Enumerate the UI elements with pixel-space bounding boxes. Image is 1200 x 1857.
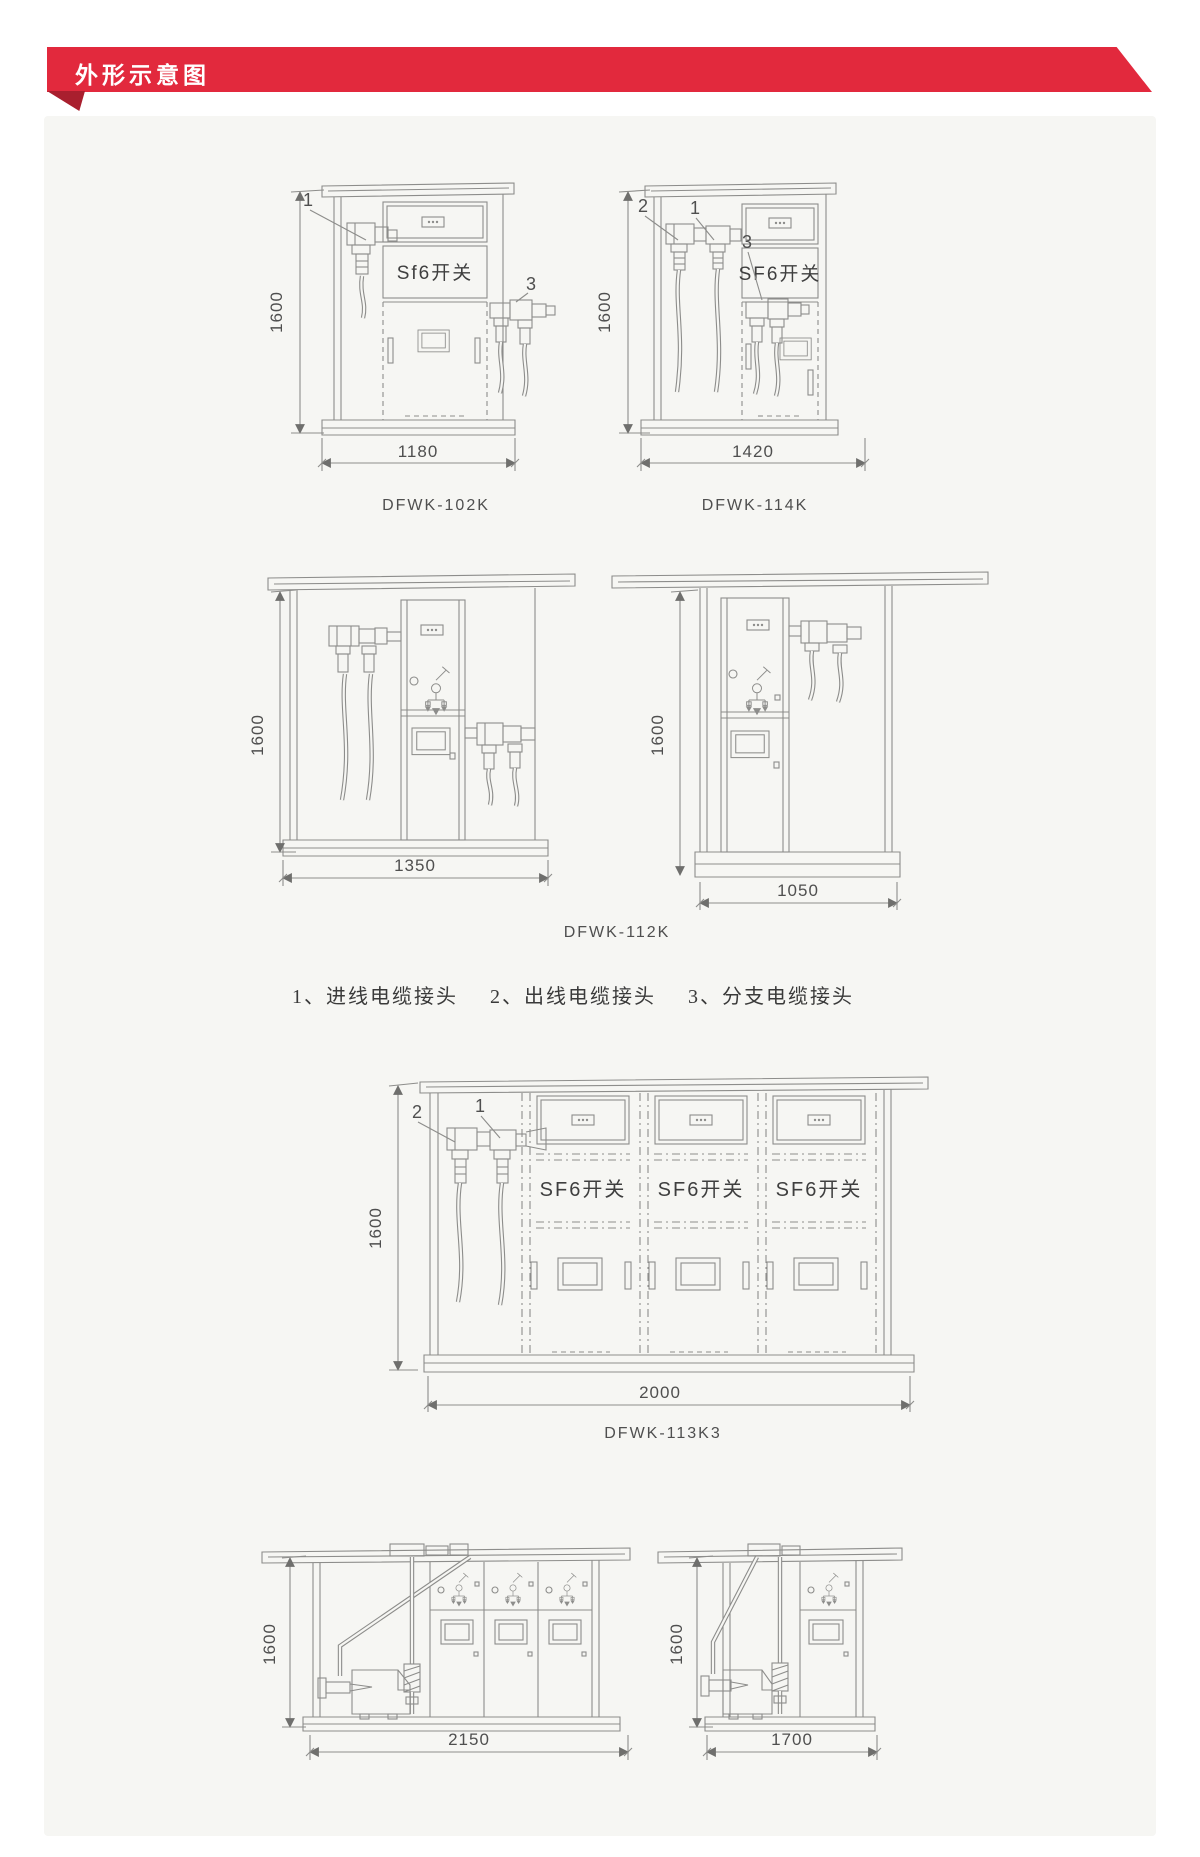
callout-3: 3 [526, 274, 536, 294]
drawing-dfwk-113k3: SF6开关 SF6开关 [366, 1077, 928, 1442]
branch-cable-connector [490, 300, 555, 396]
width-dim-label: 2000 [639, 1383, 681, 1402]
width-dim-label: 1700 [771, 1730, 813, 1749]
switch-bay [430, 1573, 484, 1656]
width-dim-label: 1350 [394, 856, 436, 875]
width-dim-label: 2150 [448, 1730, 490, 1749]
branch-cable-assembly [465, 723, 535, 806]
height-dim-label: 1600 [248, 714, 267, 756]
branch-cable-connector [746, 299, 809, 396]
switch-bay [800, 1573, 856, 1656]
height-dim-label: 1600 [260, 1623, 279, 1665]
inlet-cable-connector [347, 223, 397, 318]
width-dim-label: 1420 [732, 442, 774, 461]
callout-1: 1 [475, 1096, 485, 1116]
callout-3: 3 [742, 232, 752, 252]
cable-termination-assembly [701, 1544, 800, 1719]
panel-label: Sf6开关 [397, 262, 474, 284]
model-caption: DFWK-112K [564, 924, 671, 941]
legend: 1、进线电缆接头 2、出线电缆接头 3、分支电缆接头 [292, 980, 854, 1009]
panel-label: SF6开关 [739, 263, 822, 285]
callout-1: 1 [303, 190, 313, 210]
height-dim-label: 1600 [595, 291, 614, 333]
callout-1: 1 [690, 198, 700, 218]
switch-bay: SF6开关 [767, 1096, 867, 1352]
drawings-canvas: Sf6开关 1 [0, 0, 1200, 1857]
width-dim-label: 1050 [777, 881, 819, 900]
height-dim-label: 1600 [648, 714, 667, 756]
callout-2: 2 [638, 196, 648, 216]
inlet-cable-connector [706, 226, 741, 392]
switch-bay [538, 1573, 592, 1656]
width-dim-label: 1180 [398, 442, 439, 461]
drawing-dfwk-112k-front: 1600 1350 [248, 574, 575, 886]
drawing-view-1700: 1600 1700 [658, 1544, 902, 1760]
cable-termination-assembly [318, 1544, 470, 1719]
legend-item-inlet: 1、进线电缆接头 [292, 980, 458, 1009]
incoming-cable-assembly [329, 626, 401, 800]
drawing-dfwk-114k: SF6开关 2 [595, 183, 869, 514]
page: { "header": { "title": "外形示意图" }, "share… [0, 0, 1200, 1857]
height-dim-label: 1600 [667, 1623, 686, 1665]
switch-bay [484, 1573, 538, 1656]
height-dim-label: 1600 [366, 1207, 385, 1249]
model-caption: DFWK-113K3 [604, 1425, 722, 1442]
drawing-view-2150: 1600 2150 [260, 1544, 632, 1760]
model-caption: DFWK-102K [382, 497, 490, 514]
callout-2: 2 [412, 1102, 422, 1122]
legend-item-outlet: 2、出线电缆接头 [490, 980, 656, 1009]
switch-bay: SF6开关 [649, 1096, 749, 1352]
model-caption: DFWK-114K [702, 497, 809, 514]
height-dim-label: 1600 [267, 291, 286, 333]
outlet-cable-connector [666, 224, 706, 392]
panel-label: SF6开关 [776, 1178, 863, 1201]
legend-item-branch: 3、分支电缆接头 [688, 980, 854, 1009]
drawing-dfwk-112k-side: 1600 1050 DFWK-112K [564, 572, 988, 941]
panel-label: SF6开关 [658, 1178, 745, 1201]
drawing-dfwk-102k: Sf6开关 1 [267, 183, 555, 514]
panel-label: SF6开关 [540, 1178, 627, 1201]
branch-cable-assembly [789, 621, 861, 702]
